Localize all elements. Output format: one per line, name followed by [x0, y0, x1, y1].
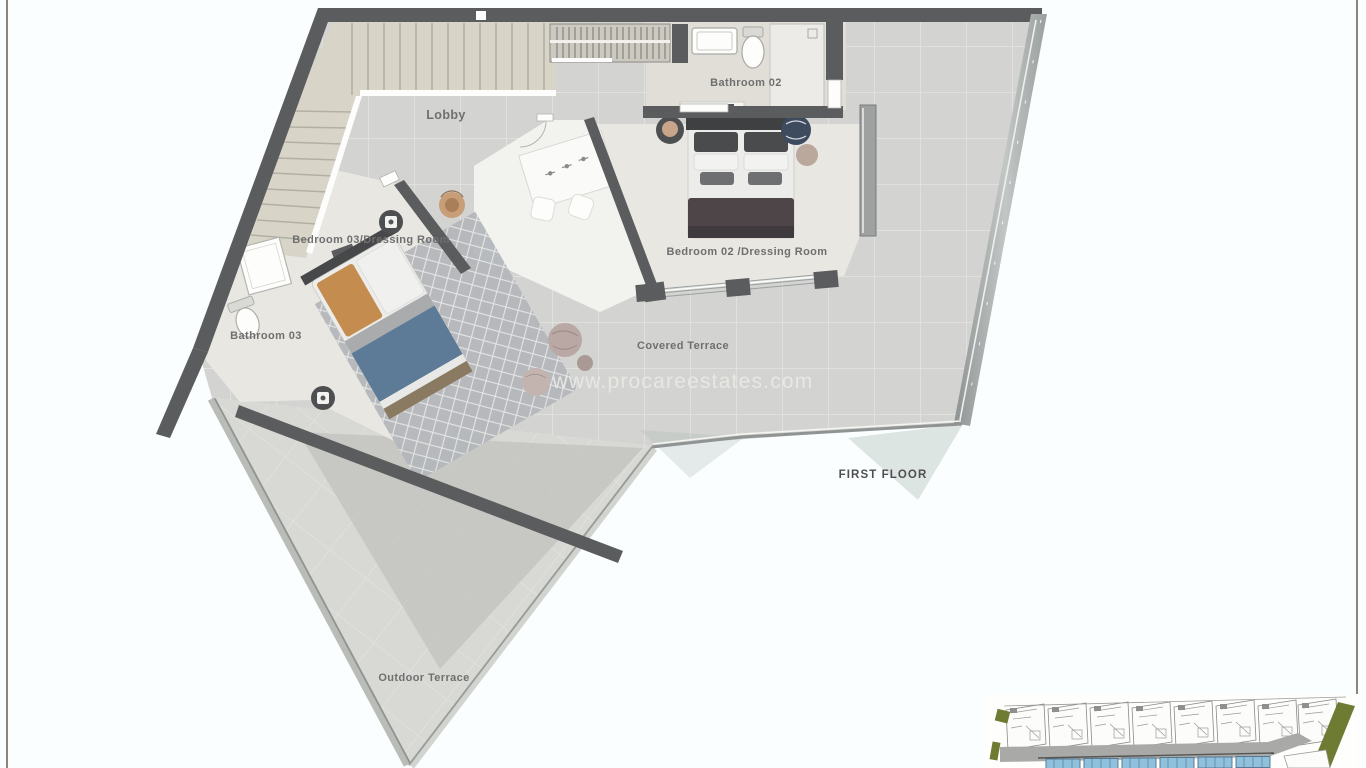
- watermark-text: www.procareestates.com: [553, 370, 814, 394]
- label-bathroom-02: Bathroom 02: [710, 77, 782, 89]
- label-first-floor: FIRST FLOOR: [839, 469, 928, 481]
- label-bedroom-02: Bedroom 02 /Dressing Room: [667, 246, 828, 258]
- label-bedroom-03: Bedroom 03/Dressing Room: [292, 234, 450, 246]
- label-outdoor-terrace: Outdoor Terrace: [378, 672, 469, 684]
- label-lobby: Lobby: [426, 108, 466, 122]
- floor-plan-page: Lobby Bathroom 02 Bedroom 02 /Dressing R…: [0, 0, 1366, 768]
- label-covered-terrace: Covered Terrace: [637, 340, 729, 352]
- label-bathroom-03: Bathroom 03: [230, 330, 302, 342]
